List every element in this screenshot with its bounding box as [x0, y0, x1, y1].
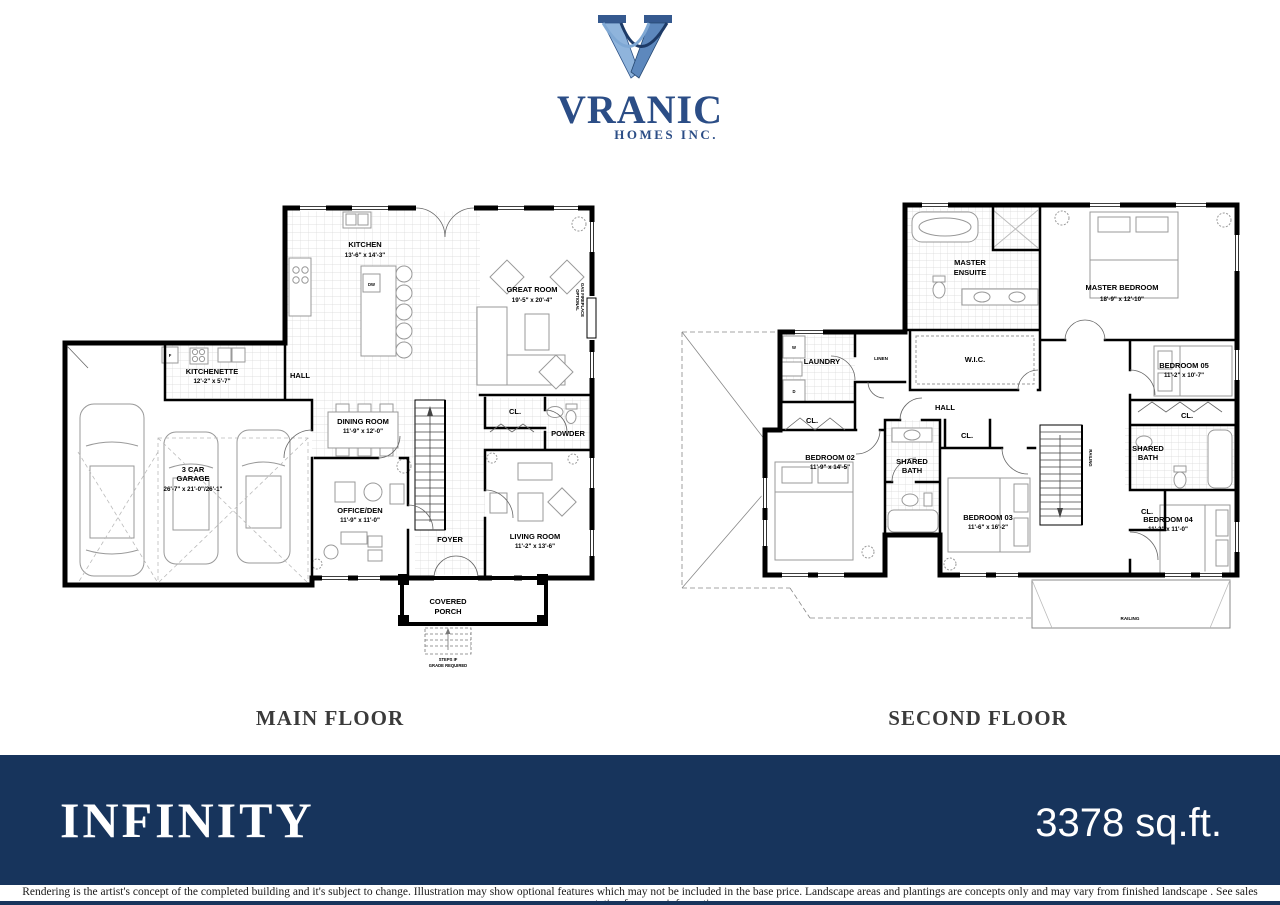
- garage-label-1: 3 CAR: [182, 465, 205, 474]
- closet-label-right: CL.: [1181, 411, 1193, 420]
- living-dims: 11'-2" x 13'-6": [515, 543, 555, 550]
- bedroom02-label: BEDROOM 02: [805, 453, 855, 462]
- kitchenette-dims: 12'-2" x 5'-7": [193, 378, 230, 385]
- second-floor-plan: MASTER ENSUITE MASTER BEDROOM 18'-9" x 1…: [660, 190, 1240, 650]
- powder-label: POWDER: [551, 429, 585, 438]
- porch-label-2: PORCH: [434, 607, 461, 616]
- closet-label-center: CL.: [961, 431, 973, 440]
- kitchen-dims: 13'-6" x 14'-3": [345, 252, 386, 259]
- foyer-label: FOYER: [437, 535, 463, 544]
- second-stairs: [1040, 425, 1082, 525]
- laundry-label: LAUNDRY: [804, 357, 840, 366]
- brand-tagline: HOMES INC.: [540, 127, 718, 143]
- hall-label-2f: HALL: [935, 403, 955, 412]
- closet-label-left: CL.: [806, 416, 818, 425]
- wic-label: W.I.C.: [965, 355, 985, 364]
- steps-label-1: STEPS IF: [439, 657, 458, 662]
- porch-label-1: COVERED: [429, 597, 467, 606]
- closet-label: CL.: [509, 407, 521, 416]
- kitchen-island: [361, 266, 412, 358]
- dishwasher-label: DW: [368, 282, 375, 287]
- shared-bath-right-label-2: BATH: [1138, 453, 1158, 462]
- main-floor-plan: KITCHEN 13'-6" x 14'-3" DW F GREAT ROOM …: [60, 200, 600, 680]
- living-label: LIVING ROOM: [510, 532, 560, 541]
- porch-steps: [425, 628, 471, 654]
- bedroom05-dims: 11'-2" x 10'-7": [1164, 372, 1204, 379]
- garage-dims: 26'-7" x 21'-0"/26'-1": [164, 486, 223, 493]
- model-name: INFINITY: [60, 791, 315, 849]
- square-footage: 3378 sq.ft.: [1035, 801, 1222, 846]
- living-room-furniture: [487, 453, 578, 521]
- fridge-label: F: [169, 353, 172, 358]
- shared-bath-center-label-2: BATH: [902, 466, 922, 475]
- kitchenette-label: KITCHENETTE: [186, 367, 239, 376]
- hall-label: HALL: [290, 371, 310, 380]
- washer-label: W: [792, 345, 796, 350]
- bedroom03-label: BEDROOM 03: [963, 513, 1013, 522]
- bedroom05-bed: [1154, 346, 1232, 396]
- dryer-label: D: [792, 389, 795, 394]
- office-label: OFFICE/DEN: [337, 506, 382, 515]
- master-bedroom-dims: 18'-9" x 12'-10": [1100, 296, 1144, 303]
- railing-label-porch: RAILING: [1121, 616, 1140, 621]
- second-floor-title: SECOND FLOOR: [828, 706, 1128, 731]
- vranic-logo-monogram-icon: [597, 14, 673, 84]
- main-stairs: [415, 400, 445, 530]
- shared-bath-center-label-1: SHARED: [896, 457, 928, 466]
- bedroom02-dims: 11'-9" x 14'-5": [810, 464, 850, 471]
- railing-label-stairs: RAILING: [1088, 449, 1093, 466]
- kitchenette-counters: [162, 347, 245, 364]
- floorplan-sheet: VRANIC HOMES INC.: [0, 0, 1280, 905]
- bedroom05-label: BEDROOM 05: [1159, 361, 1209, 370]
- model-banner: INFINITY 3378 sq.ft.: [0, 755, 1280, 885]
- great-room-dims: 19'-5" x 20'-4": [512, 297, 553, 304]
- covered-porch: [398, 574, 548, 626]
- master-ensuite-label-1: MASTER: [954, 258, 986, 267]
- office-furniture: [312, 482, 404, 569]
- shared-bath-right-label-1: SHARED: [1132, 444, 1164, 453]
- kitchen-label: KITCHEN: [348, 240, 381, 249]
- garage-label-2: GARAGE: [177, 474, 210, 483]
- brand-name: VRANIC: [540, 86, 740, 133]
- master-ensuite-label-2: ENSUITE: [954, 268, 987, 277]
- fireplace-label-1: OPTIONAL: [575, 289, 580, 311]
- great-room-label: GREAT ROOM: [506, 285, 557, 294]
- steps-label-2: GRADE REQUIRED: [429, 663, 467, 668]
- dining-dims: 11'-9" x 12'-0": [343, 428, 383, 435]
- bedroom04-label: BEDROOM 04: [1143, 515, 1193, 524]
- linen-label: LINEN: [874, 356, 888, 361]
- master-bedroom-label: MASTER BEDROOM: [1086, 283, 1159, 292]
- office-dims: 11'-9" x 11'-0": [340, 517, 380, 524]
- bedroom04-dims: 11'-2" x 11'-0": [1148, 526, 1188, 533]
- main-floor-title: MAIN FLOOR: [180, 706, 480, 731]
- bottom-accent-strip: [0, 901, 1280, 905]
- bedroom02-bed: [775, 462, 874, 560]
- dining-label: DINING ROOM: [337, 417, 389, 426]
- fireplace-label-2: GAS FIREPLACE: [580, 283, 585, 317]
- bedroom03-dims: 11'-6" x 16'-2": [968, 524, 1008, 531]
